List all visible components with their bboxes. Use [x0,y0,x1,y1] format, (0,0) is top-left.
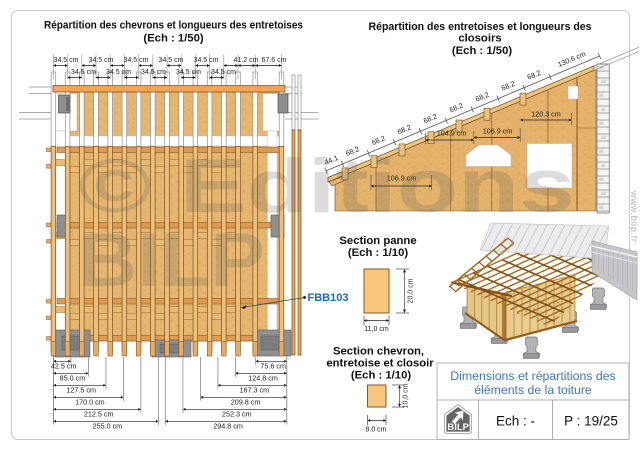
svg-text:20,0 cm: 20,0 cm [408,278,415,303]
svg-text:34.5 cm: 34.5 cm [89,57,114,64]
svg-text:67.6 cm: 67.6 cm [262,57,287,64]
svg-text:252.3 cm: 252.3 cm [222,410,252,419]
svg-text:34.5 cm: 34.5 cm [211,69,236,76]
svg-text:41.2 cm: 41.2 cm [234,57,259,64]
svg-text:closoirs: closoirs [458,33,501,45]
svg-text:BILP: BILP [78,218,265,303]
svg-text:(Ech : 1/10): (Ech : 1/10) [351,370,412,382]
svg-text:11,0 cm: 11,0 cm [364,326,389,333]
svg-text:127.5 cm: 127.5 cm [66,386,96,395]
svg-text:75.6 cm: 75.6 cm [260,362,286,371]
svg-text:106.9 cm: 106.9 cm [483,127,513,136]
svg-text:8.0 cm: 8.0 cm [365,427,386,434]
svg-text:104.9 cm: 104.9 cm [437,129,467,138]
svg-text:© Editions: © Editions [78,144,575,229]
svg-text:Section chevron,: Section chevron, [333,346,424,358]
svg-text:294.8 cm: 294.8 cm [213,422,243,431]
svg-text:(Ech : 1/50): (Ech : 1/50) [143,33,204,45]
svg-text:85.0 cm: 85.0 cm [60,374,86,383]
svg-text:34.5 cm: 34.5 cm [71,69,96,76]
svg-text:Répartition des chevrons et lo: Répartition des chevrons et longueurs de… [44,20,303,32]
svg-text:34.5 cm: 34.5 cm [124,57,149,64]
svg-text:34.5 cm: 34.5 cm [159,57,184,64]
svg-text:34.5 cm: 34.5 cm [141,69,166,76]
svg-text:(Ech : 1/10): (Ech : 1/10) [348,247,409,259]
svg-text:Ech : -: Ech : - [496,414,535,429]
svg-text:42.5 cm: 42.5 cm [51,362,77,371]
svg-text:éléments de la toiture: éléments de la toiture [474,383,592,397]
svg-text:34.5 cm: 34.5 cm [54,57,79,64]
svg-text:Dimensions et répartitions des: Dimensions et répartitions des [450,369,615,383]
svg-text:Répartition des entretoises et: Répartition des entretoises et longueurs… [369,21,592,33]
svg-text:10,0 cm: 10,0 cm [403,383,410,408]
svg-text:entretoise et closoir: entretoise et closoir [326,358,434,370]
svg-text:212.5 cm: 212.5 cm [84,410,114,419]
svg-text:www.bilp.fr: www.bilp.fr [629,190,639,243]
svg-text:120.3 cm: 120.3 cm [531,110,561,119]
svg-text:P : 19/25: P : 19/25 [564,414,618,429]
svg-text:124.8 cm: 124.8 cm [248,374,278,383]
svg-text:170.0 cm: 170.0 cm [75,398,105,407]
svg-text:34.5 cm: 34.5 cm [106,69,131,76]
svg-text:167.3 cm: 167.3 cm [240,386,270,395]
svg-text:BILP: BILP [447,422,469,432]
svg-text:FBB103: FBB103 [308,292,349,304]
svg-text:(Ech : 1/50): (Ech : 1/50) [452,45,513,57]
svg-text:255.0 cm: 255.0 cm [93,422,123,431]
svg-text:Section panne: Section panne [339,235,416,247]
svg-text:34.5 cm: 34.5 cm [194,57,219,64]
svg-text:209.8 cm: 209.8 cm [231,398,261,407]
svg-text:34.5 cm: 34.5 cm [176,69,201,76]
